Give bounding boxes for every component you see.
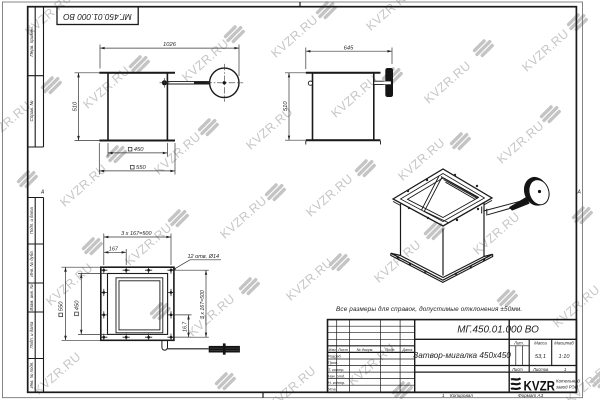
svg-text:А: А <box>577 190 582 196</box>
svg-text:Утв.: Утв. <box>328 387 337 391</box>
svg-text:Котельный: Котельный <box>556 378 580 383</box>
svg-text:1:10: 1:10 <box>559 354 571 360</box>
svg-text:3 x 167=500: 3 x 167=500 <box>121 231 152 237</box>
svg-text:А: А <box>40 190 45 196</box>
svg-text:МГ.450.01.000 ВО: МГ.450.01.000 ВО <box>63 12 132 22</box>
svg-text:550: 550 <box>59 301 65 311</box>
svg-text:1: 1 <box>564 367 566 372</box>
svg-text:12 отв. Ø14: 12 отв. Ø14 <box>188 254 220 260</box>
svg-text:№ докум.: № докум. <box>357 348 374 352</box>
svg-text:Н. контр.: Н. контр. <box>328 381 345 385</box>
svg-text:Пров.: Пров. <box>328 361 338 365</box>
svg-text:Затвор-мигалка 450х450: Затвор-мигалка 450х450 <box>413 351 511 360</box>
svg-text:Масштаб: Масштаб <box>554 340 574 345</box>
svg-text:450: 450 <box>74 300 80 310</box>
svg-text:Лит.: Лит. <box>513 340 524 345</box>
svg-text:Подп.: Подп. <box>385 348 395 352</box>
svg-text:53,1: 53,1 <box>535 354 546 360</box>
svg-text:Перв. примен.: Перв. примен. <box>29 26 34 57</box>
svg-text:Лист: Лист <box>511 367 523 372</box>
svg-text:Лист: Лист <box>337 348 348 352</box>
svg-text:завод РЭП: завод РЭП <box>555 385 579 390</box>
svg-text:16,7: 16,7 <box>183 321 189 332</box>
svg-text:МГ.450.01.000 ВО: МГ.450.01.000 ВО <box>457 325 539 336</box>
svg-text:167: 167 <box>109 246 119 252</box>
svg-text:Формат А3: Формат А3 <box>518 393 544 398</box>
svg-text:Взам. инв. №: Взам. инв. № <box>29 284 34 311</box>
svg-text:Нач. отд.: Нач. отд. <box>328 374 345 378</box>
svg-text:510: 510 <box>283 101 289 111</box>
svg-text:Листов: Листов <box>532 367 549 372</box>
svg-text:3 x 167=500: 3 x 167=500 <box>200 290 206 319</box>
svg-text:Инв. № подл.: Инв. № подл. <box>29 362 34 389</box>
svg-text:Изм: Изм <box>329 348 336 352</box>
svg-text:Подп. и дата: Подп. и дата <box>29 207 34 235</box>
svg-text:Все размеры для справок, допус: Все размеры для справок, допустимые откл… <box>336 305 522 313</box>
svg-text:Копировал: Копировал <box>450 393 473 398</box>
svg-text:510: 510 <box>73 101 79 111</box>
svg-text:1: 1 <box>442 393 445 398</box>
svg-text:1026: 1026 <box>163 42 177 48</box>
svg-text:Подп. и дата: Подп. и дата <box>29 321 34 349</box>
svg-text:Справ. №: Справ. № <box>29 101 34 122</box>
svg-text:Масса: Масса <box>534 340 547 345</box>
svg-text:Инв. № дубл.: Инв. № дубл. <box>29 250 34 276</box>
svg-text:Т. контр.: Т. контр. <box>328 368 344 372</box>
svg-text:Дата: Дата <box>401 348 412 352</box>
svg-text:450: 450 <box>134 147 144 153</box>
svg-text:Разраб.: Разраб. <box>328 355 342 359</box>
svg-text:550: 550 <box>136 165 146 171</box>
svg-text:KVZR: KVZR <box>524 378 556 393</box>
svg-text:645: 645 <box>344 45 354 51</box>
